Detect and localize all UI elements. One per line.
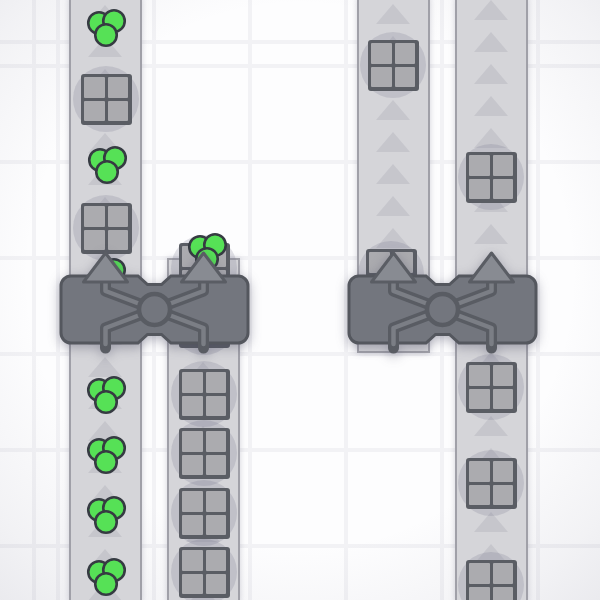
crate-quadrant [182,455,203,476]
crate-quadrant [469,179,490,200]
crate-quadrant [395,67,416,88]
balancer-input-arrow-icon [84,253,128,282]
item-crate [466,458,517,509]
item-crate [179,547,230,598]
belt-arrow-icon [376,164,410,184]
item-green-circles [83,375,127,415]
crate-quadrant [182,574,203,595]
balancer-input-arrow-icon [470,253,514,282]
item-crate [368,40,419,91]
crate-quadrant [108,230,129,251]
crate-quadrant [182,431,203,452]
crate-quadrant [108,206,129,227]
crate-quadrant [108,101,129,122]
crate-quadrant [493,155,514,176]
crate-quadrant [182,550,203,571]
item-crate [466,362,517,413]
crate-quadrant [493,485,514,506]
item-crate [466,560,517,600]
crate-quadrant [469,485,490,506]
crate-quadrant [206,455,227,476]
belt-arrow-icon [88,357,122,377]
crate-quadrant [371,43,392,64]
balancer-hub-circle [427,294,458,325]
crate-quadrant [469,155,490,176]
crate-quadrant [493,563,514,584]
crate-quadrant [84,77,105,98]
item-crate [466,152,517,203]
item-green-circles [83,8,127,48]
crate-quadrant [84,230,105,251]
crate-quadrant [182,491,203,512]
crate-quadrant [182,396,203,417]
crate-quadrant [469,461,490,482]
crate-quadrant [206,431,227,452]
item-green-circles [83,435,127,475]
crate-quadrant [493,587,514,600]
crate-quadrant [493,389,514,410]
crate-quadrant [206,574,227,595]
belt-arrow-icon [376,132,410,152]
item-crate [81,74,132,125]
item-green-circles [83,557,127,597]
balancer-machine[interactable] [348,248,537,360]
belt-arrow-icon [376,4,410,24]
crate-quadrant [469,389,490,410]
crate-quadrant [206,515,227,536]
balancer-hub-circle [139,294,170,325]
item-crate [179,488,230,539]
balancer-input-arrow-icon [182,253,226,282]
crate-quadrant [469,365,490,386]
item-green-circles [84,145,128,185]
crate-quadrant [371,67,392,88]
item-crate [179,369,230,420]
item-crate [81,203,132,254]
belt-arrow-icon [376,100,410,120]
crate-quadrant [206,491,227,512]
belt-arrow-icon [474,96,508,116]
balancer-input-arrow-icon [372,253,416,282]
crate-quadrant [469,587,490,600]
item-green-circles [83,495,127,535]
crate-quadrant [206,396,227,417]
belt-arrow-icon [474,32,508,52]
item-crate [179,428,230,479]
belt-arrow-icon [376,196,410,216]
belt-arrow-icon [474,64,508,84]
crate-quadrant [108,77,129,98]
crate-quadrant [493,365,514,386]
crate-quadrant [84,206,105,227]
crate-quadrant [395,43,416,64]
belt-arrow-icon [474,0,508,20]
crate-quadrant [206,372,227,393]
crate-quadrant [182,515,203,536]
crate-quadrant [469,563,490,584]
balancer-machine[interactable] [60,248,249,360]
crate-quadrant [84,101,105,122]
game-viewport[interactable] [0,0,600,600]
crate-quadrant [206,550,227,571]
crate-quadrant [493,461,514,482]
crate-quadrant [182,372,203,393]
belt-arrow-icon [474,224,508,244]
crate-quadrant [493,179,514,200]
